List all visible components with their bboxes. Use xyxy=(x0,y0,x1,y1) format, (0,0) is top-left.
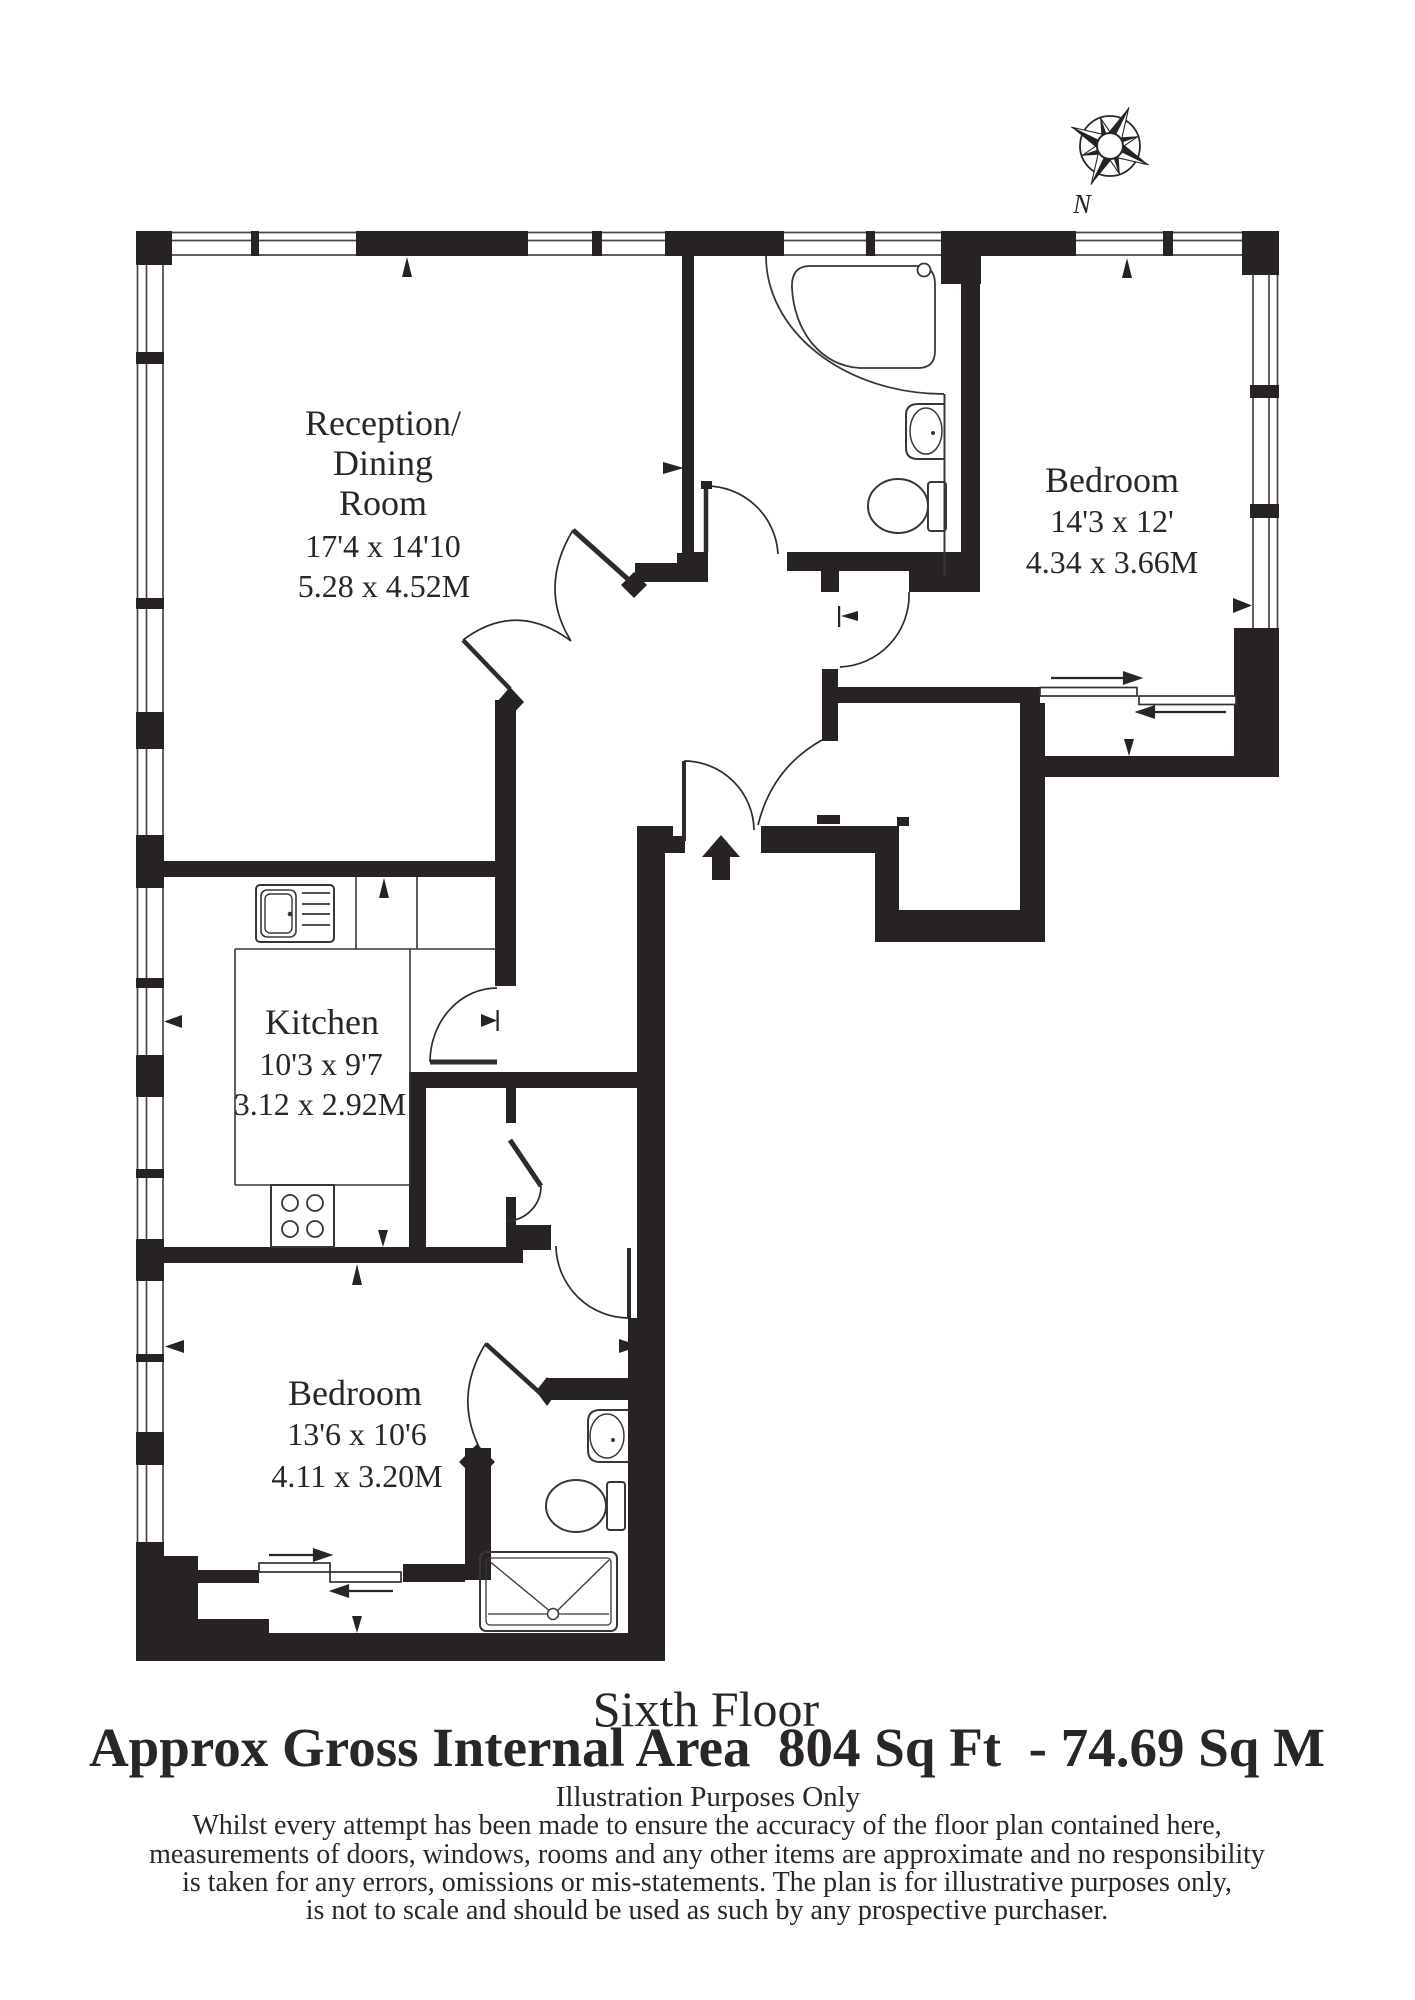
svg-text:4.34 x 3.66M: 4.34 x 3.66M xyxy=(1026,544,1198,580)
svg-text:Kitchen: Kitchen xyxy=(265,1002,379,1042)
svg-text:Approx Gross Internal Area 80: Approx Gross Internal Area 804 Sq Ft - 7… xyxy=(89,1717,1325,1778)
svg-text:is taken for any errors, omiss: is taken for any errors, omissions or mi… xyxy=(182,1867,1232,1898)
svg-text:13'6 x 10'6: 13'6 x 10'6 xyxy=(287,1416,427,1452)
svg-text:Illustration Purposes Only: Illustration Purposes Only xyxy=(556,1781,861,1813)
svg-text:17'4 x 14'10: 17'4 x 14'10 xyxy=(305,528,461,564)
svg-text:4.11 x 3.20M: 4.11 x 3.20M xyxy=(271,1458,442,1494)
svg-text:Reception/: Reception/ xyxy=(305,403,461,443)
svg-text:5.28 x 4.52M: 5.28 x 4.52M xyxy=(298,568,470,604)
svg-text:N: N xyxy=(1072,189,1093,219)
svg-text:Whilst every attempt has been: Whilst every attempt has been made to en… xyxy=(192,1810,1221,1841)
svg-text:Bedroom: Bedroom xyxy=(1045,460,1179,500)
svg-text:Dining: Dining xyxy=(333,443,433,483)
svg-text:measurements of doors, windows: measurements of doors, windows, rooms an… xyxy=(149,1839,1265,1870)
svg-text:14'3 x 12': 14'3 x 12' xyxy=(1050,503,1174,539)
svg-text:Room: Room xyxy=(339,483,427,523)
svg-text:Bedroom: Bedroom xyxy=(288,1373,422,1413)
svg-text:is not to scale and should be: is not to scale and should be used as su… xyxy=(306,1895,1108,1926)
svg-text:3.12 x 2.92M: 3.12 x 2.92M xyxy=(234,1086,406,1122)
svg-text:10'3 x 9'7: 10'3 x 9'7 xyxy=(259,1046,383,1082)
